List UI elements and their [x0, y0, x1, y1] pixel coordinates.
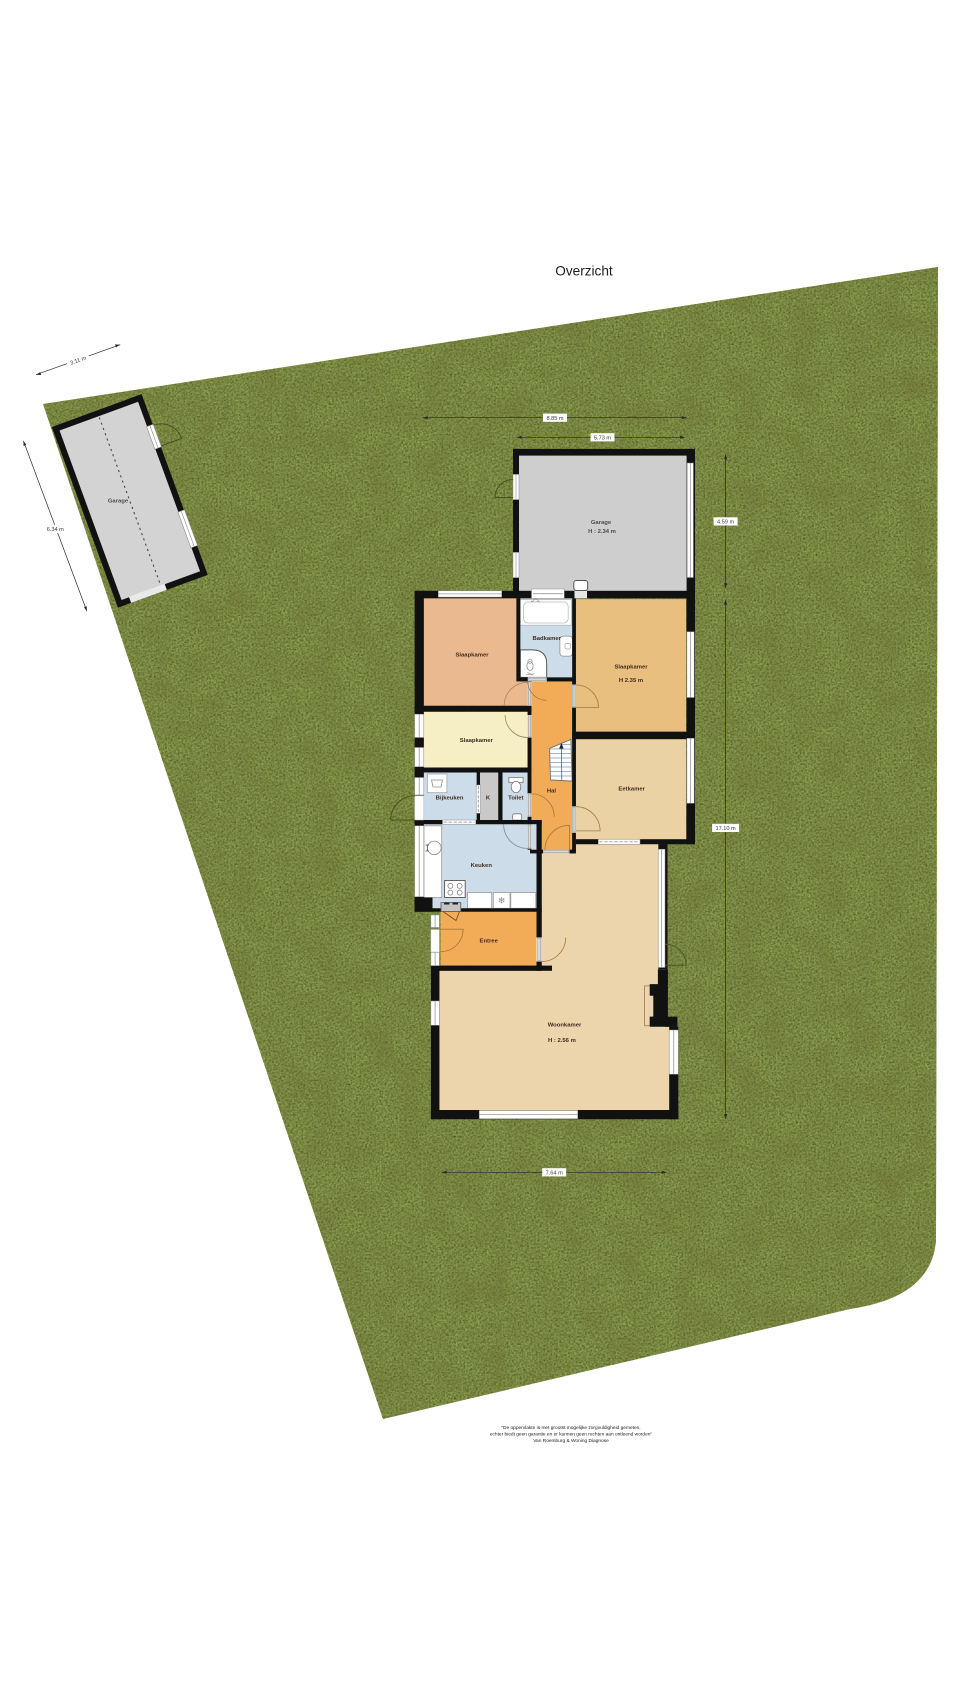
- svg-text:echter biedt geen garantie en: echter biedt geen garantie en er kunnen …: [490, 1432, 653, 1438]
- svg-text:H : 2.56 m: H : 2.56 m: [548, 1038, 576, 1044]
- svg-text:Eetkamer: Eetkamer: [618, 787, 645, 793]
- svg-text:Slaapkamer: Slaapkamer: [614, 664, 648, 670]
- svg-text:❄: ❄: [498, 896, 506, 906]
- svg-text:Keuken: Keuken: [471, 863, 493, 869]
- svg-text:Entree: Entree: [480, 938, 499, 944]
- svg-text:5.73 m: 5.73 m: [594, 436, 611, 442]
- svg-text:"De oppervlakte is met grootst: "De oppervlakte is met grootst mogelijke…: [501, 1425, 640, 1431]
- svg-text:Garage: Garage: [591, 520, 612, 526]
- svg-text:H 2.35 m: H 2.35 m: [619, 678, 643, 684]
- svg-text:Bijkeuken: Bijkeuken: [436, 796, 464, 802]
- svg-text:17.10 m: 17.10 m: [715, 826, 736, 832]
- svg-text:K: K: [486, 796, 491, 802]
- svg-text:Woonkamer: Woonkamer: [548, 1023, 582, 1029]
- svg-text:7.64 m: 7.64 m: [546, 1171, 563, 1177]
- svg-text:H : 2.34 m: H : 2.34 m: [588, 529, 616, 535]
- svg-text:3.11 m: 3.11 m: [70, 355, 88, 366]
- svg-text:Badkamer: Badkamer: [532, 636, 561, 642]
- svg-text:Hal: Hal: [547, 788, 557, 794]
- svg-text:4.59 m: 4.59 m: [717, 520, 734, 526]
- svg-text:Van Roemburg & Woning Diagnose: Van Roemburg & Woning Diagnose: [533, 1438, 609, 1444]
- svg-text:Garage: Garage: [108, 499, 129, 505]
- svg-text:8.85 m: 8.85 m: [546, 416, 563, 422]
- svg-text:Slaapkamer: Slaapkamer: [455, 652, 489, 658]
- svg-text:Overzicht: Overzicht: [555, 264, 613, 279]
- svg-text:6.34 m: 6.34 m: [47, 527, 64, 533]
- svg-text:Slaapkamer: Slaapkamer: [460, 738, 494, 744]
- svg-text:Toilet: Toilet: [508, 796, 523, 802]
